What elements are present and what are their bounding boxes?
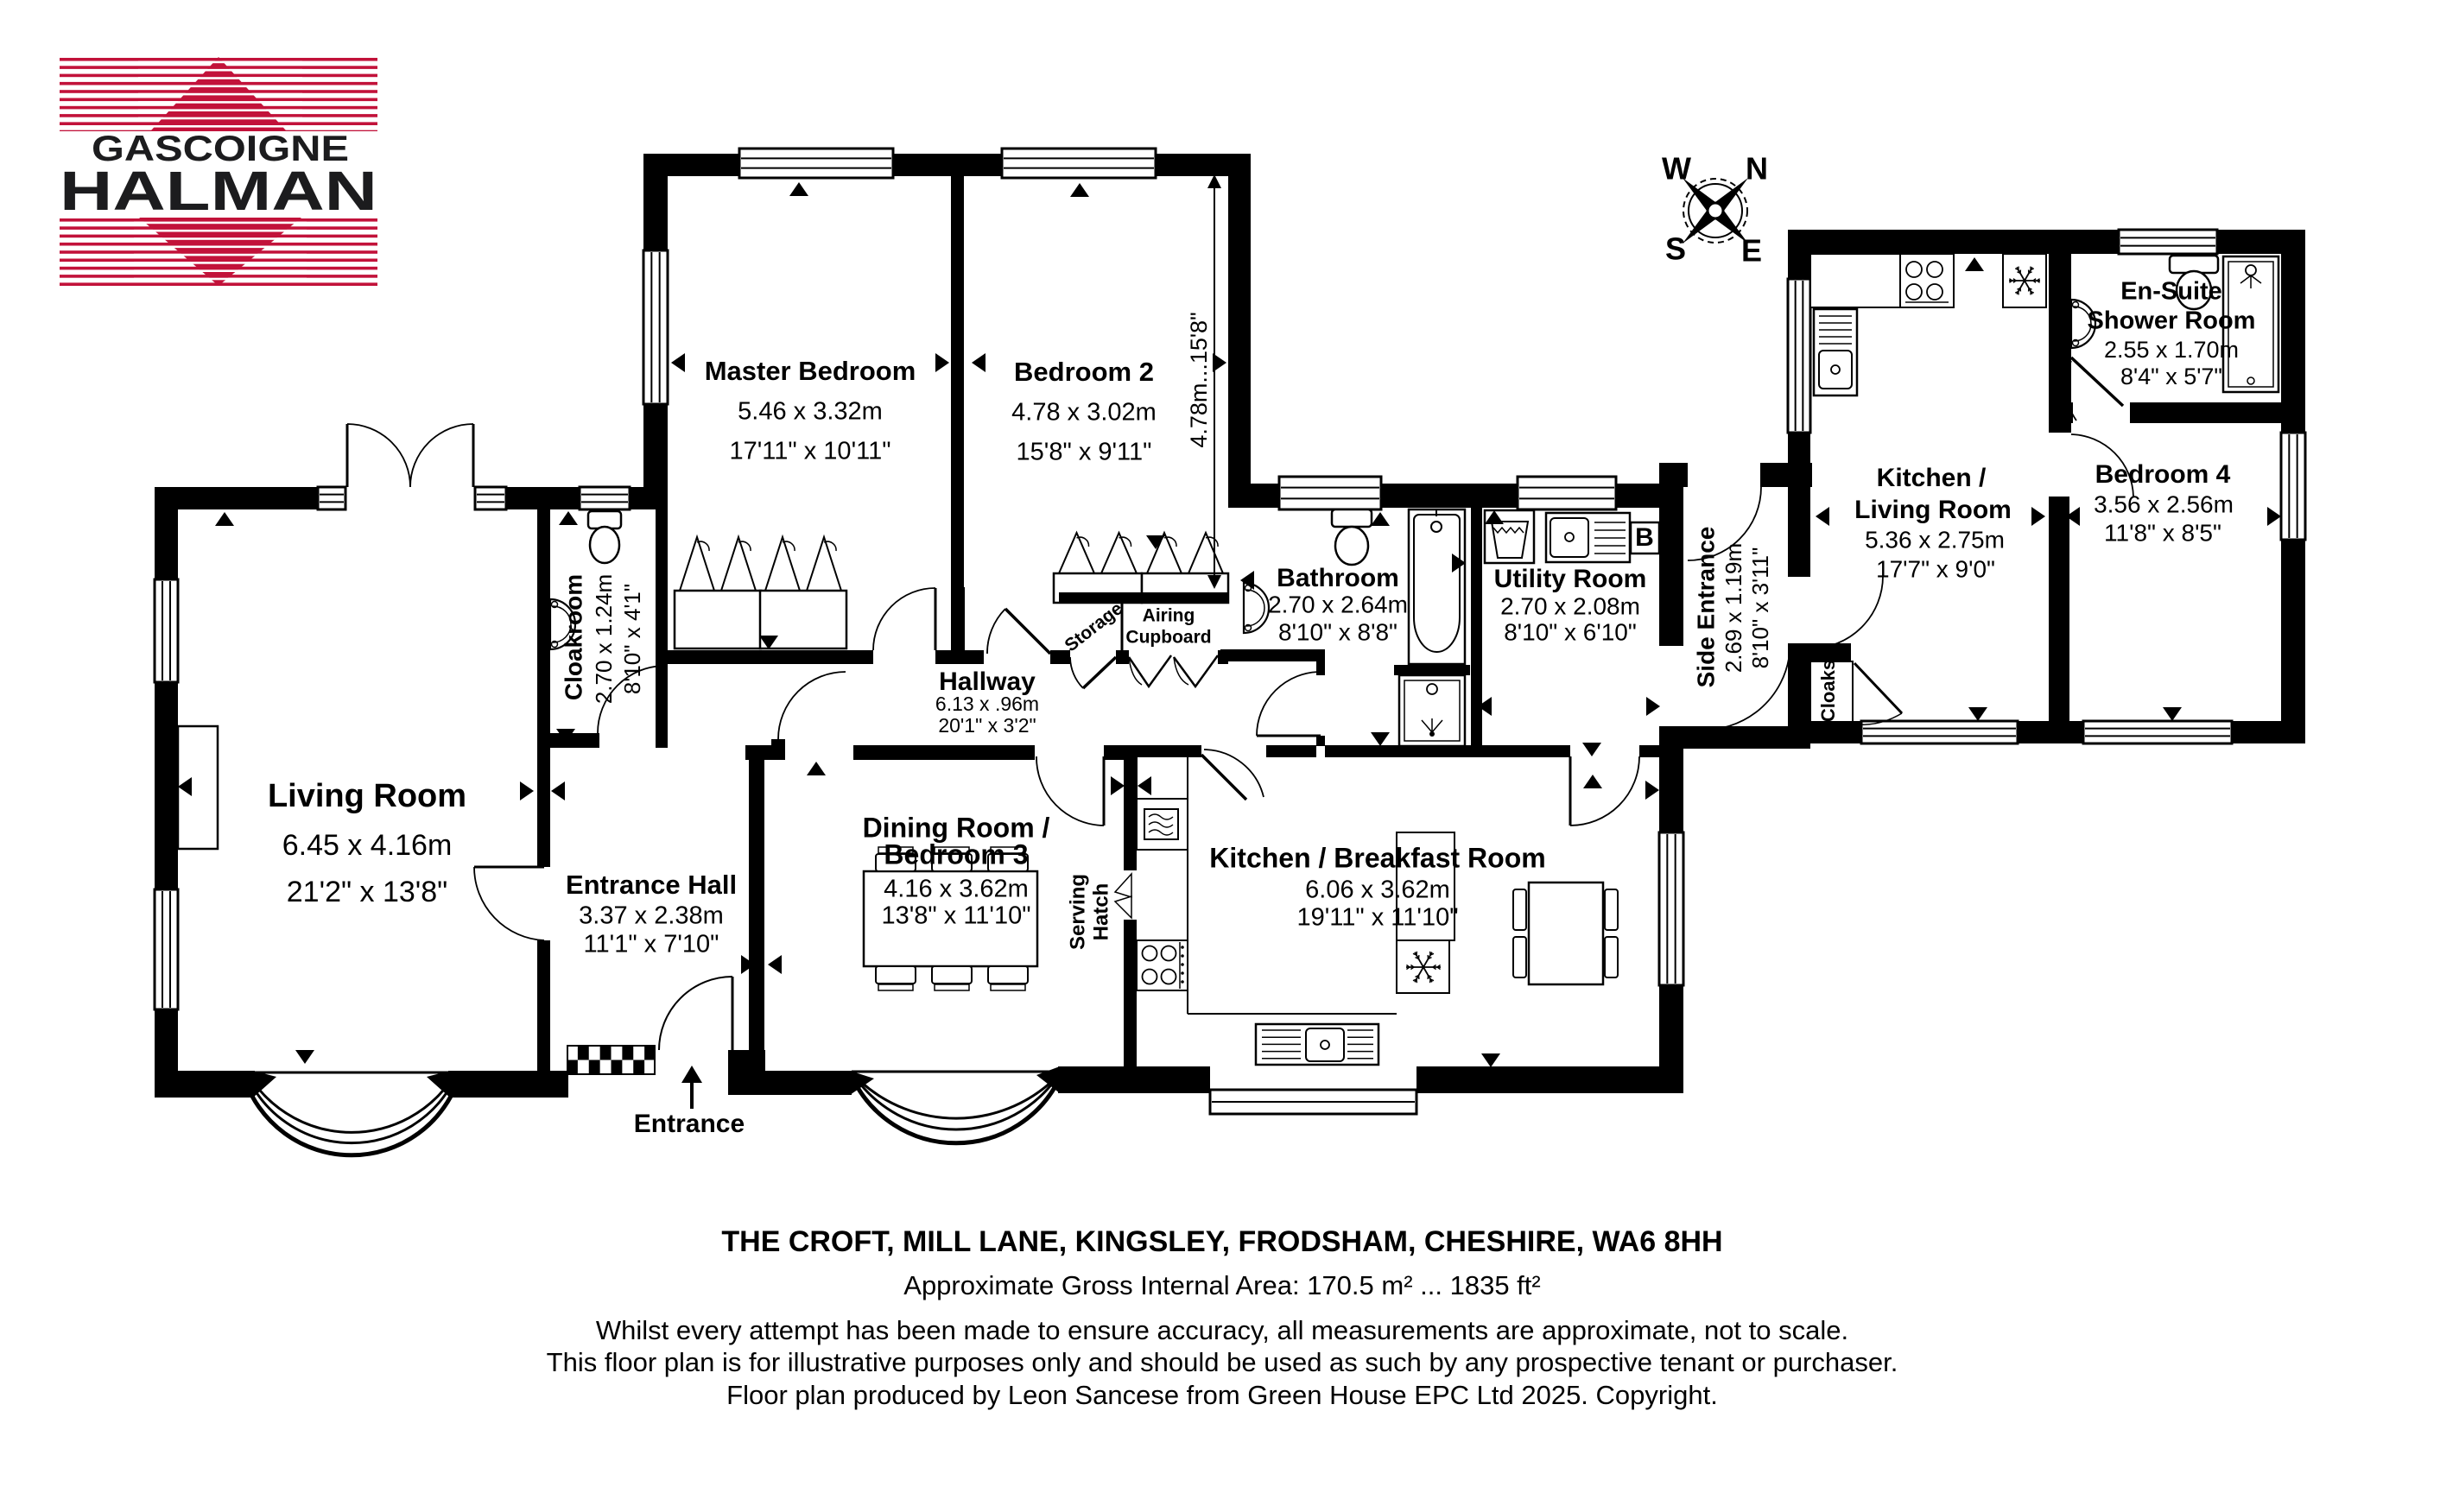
- svg-text:17'7" x 9'0": 17'7" x 9'0": [1876, 555, 1995, 582]
- svg-text:Hatch: Hatch: [1089, 883, 1112, 941]
- svg-text:B: B: [1635, 523, 1654, 552]
- svg-text:Bedroom 4: Bedroom 4: [2095, 460, 2231, 489]
- svg-text:8'10" x 3'11": 8'10" x 3'11": [1747, 547, 1773, 669]
- svg-text:3.56 x 2.56m: 3.56 x 2.56m: [2094, 490, 2234, 517]
- svg-text:11'8" x 8'5": 11'8" x 8'5": [2104, 519, 2221, 546]
- svg-text:This floor plan is for illustr: This floor plan is for illustrative purp…: [547, 1347, 1898, 1377]
- svg-text:8'10" x 8'8": 8'10" x 8'8": [1278, 618, 1397, 645]
- svg-text:19'11" x 11'10": 19'11" x 11'10": [1297, 904, 1459, 932]
- svg-text:2.70 x 2.08m: 2.70 x 2.08m: [1500, 592, 1640, 619]
- svg-text:4.78m...15'8": 4.78m...15'8": [1186, 312, 1212, 447]
- svg-text:Kitchen / Breakfast Room: Kitchen / Breakfast Room: [1209, 842, 1545, 873]
- svg-text:Bathroom: Bathroom: [1277, 564, 1399, 592]
- svg-text:6.13 x .96m: 6.13 x .96m: [935, 693, 1039, 715]
- svg-text:Cloakroom: Cloakroom: [560, 574, 586, 700]
- svg-text:2.70 x 1.24m: 2.70 x 1.24m: [591, 574, 617, 704]
- svg-text:W: W: [1662, 151, 1691, 187]
- svg-text:5.36 x 2.75m: 5.36 x 2.75m: [1865, 526, 2005, 553]
- svg-text:13'8" x 11'10": 13'8" x 11'10": [881, 902, 1030, 930]
- svg-text:E: E: [1741, 233, 1762, 269]
- svg-text:Living Room: Living Room: [1854, 496, 2012, 524]
- svg-text:4.16 x 3.62m: 4.16 x 3.62m: [884, 876, 1029, 903]
- svg-text:Shower Room: Shower Room: [2088, 307, 2256, 335]
- svg-text:5.46 x 3.32m: 5.46 x 3.32m: [738, 398, 883, 426]
- svg-text:3.37 x 2.38m: 3.37 x 2.38m: [579, 902, 724, 930]
- svg-text:2.70 x 2.64m: 2.70 x 2.64m: [1268, 591, 1408, 617]
- svg-text:8'10" x 6'10": 8'10" x 6'10": [1504, 618, 1637, 645]
- svg-text:11'1" x 7'10": 11'1" x 7'10": [584, 931, 719, 958]
- svg-text:15'8" x 9'11": 15'8" x 9'11": [1017, 439, 1152, 466]
- svg-text:Bedroom 3: Bedroom 3: [884, 838, 1028, 870]
- svg-text:En-Suite: En-Suite: [2120, 278, 2222, 306]
- svg-text:Hallway: Hallway: [939, 667, 1036, 696]
- svg-text:Utility Room: Utility Room: [1494, 565, 1647, 593]
- svg-text:Cupboard: Cupboard: [1125, 628, 1211, 648]
- svg-text:17'11" x 10'11": 17'11" x 10'11": [730, 438, 891, 465]
- svg-text:Master Bedroom: Master Bedroom: [705, 356, 916, 386]
- svg-text:THE CROFT, MILL LANE, KINGSLEY: THE CROFT, MILL LANE, KINGSLEY, FRODSHAM…: [721, 1225, 1722, 1258]
- svg-text:20'1" x 3'2": 20'1" x 3'2": [938, 714, 1036, 737]
- svg-text:Whilst every attempt has been: Whilst every attempt has been made to en…: [596, 1315, 1848, 1345]
- svg-text:Side Entrance: Side Entrance: [1692, 527, 1719, 688]
- svg-text:6.06 x 3.62m: 6.06 x 3.62m: [1305, 876, 1450, 904]
- svg-text:Living Room: Living Room: [268, 778, 466, 814]
- svg-text:HALMAN: HALMAN: [60, 160, 377, 222]
- svg-text:Cloaks: Cloaks: [1817, 660, 1839, 722]
- svg-text:S: S: [1665, 231, 1686, 267]
- svg-text:Serving: Serving: [1066, 874, 1089, 950]
- svg-text:21'2" x 13'8": 21'2" x 13'8": [287, 876, 447, 908]
- svg-text:4.78 x 3.02m: 4.78 x 3.02m: [1011, 399, 1157, 427]
- svg-text:2.69 x 1.19m: 2.69 x 1.19m: [1721, 543, 1746, 673]
- svg-text:Floor plan produced by Leon Sa: Floor plan produced by Leon Sancese from…: [726, 1380, 1718, 1410]
- svg-text:6.45 x 4.16m: 6.45 x 4.16m: [282, 829, 453, 862]
- svg-text:8'4" x 5'7": 8'4" x 5'7": [2120, 364, 2222, 389]
- svg-text:Entrance: Entrance: [634, 1110, 745, 1138]
- svg-text:2.55 x 1.70m: 2.55 x 1.70m: [2104, 337, 2239, 363]
- svg-text:Entrance Hall: Entrance Hall: [566, 870, 737, 900]
- svg-text:N: N: [1746, 151, 1768, 187]
- svg-text:8'10" x 4'1": 8'10" x 4'1": [619, 584, 645, 694]
- svg-text:Approximate Gross Internal Are: Approximate Gross Internal Area: 170.5 m…: [903, 1270, 1540, 1300]
- svg-text:Airing: Airing: [1143, 606, 1195, 626]
- svg-text:Bedroom 2: Bedroom 2: [1014, 357, 1154, 387]
- svg-text:Kitchen /: Kitchen /: [1877, 464, 1987, 492]
